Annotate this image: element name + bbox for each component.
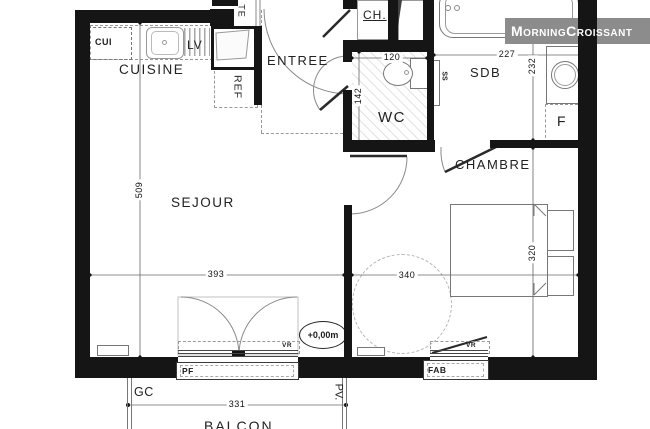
pf-sill: PF [176,362,299,380]
dim-balcon-width: 331 [227,400,248,410]
dim-chambre-depth: 320 [528,243,538,264]
room-label-entree: ENTREE [267,54,329,67]
wall-bottom-b [298,357,430,378]
chambre-door-arc [441,147,445,172]
dim-sejour-height: 509 [135,180,145,201]
room-label-balcon: BALCON [204,419,274,429]
wall-bottom-c [488,357,597,380]
wall-wc-sdb [427,52,434,143]
wall-partition [344,205,352,357]
fab-sill: FAB [423,360,489,380]
dim-sejour-width: 393 [206,270,227,280]
dim-chambre-width: 340 [397,271,418,281]
wall-wc-top [348,40,434,52]
fab-label: FAB [428,365,447,375]
level-marker: +0,00m [299,321,347,349]
room-label-cuisine: CUISINE [119,63,184,77]
wall-te-top [212,0,238,6]
wall-right [578,0,597,380]
cooktop-label: CUI [95,38,112,47]
balcony-gc-label: GC [134,386,154,399]
wall-left [75,10,90,378]
wall-te-right [254,26,262,105]
water-heater-label: CH. [363,9,387,21]
dim-sdb-width: 227 [497,50,518,60]
hall-door-arc [351,157,407,214]
fridge-label: REF [232,75,243,99]
watermark-text: MorningCroissant [511,22,632,40]
pf-label: PF [182,366,194,376]
room-label-wc: WC [378,110,406,125]
entry-closet-panel [216,30,249,60]
wall-entry-jamb [343,0,357,9]
towel-radiator-label: SS [441,71,448,80]
wall-hall-top [343,140,435,152]
electrical-panel-label: TE [237,4,246,18]
wall-te-block [210,9,234,26]
floor-plan: CUI LV REF TE CH. SS F +0,00m [0,0,650,429]
entrance-door-leaf [323,10,350,37]
wall-bottom-a [75,357,178,378]
room-label-sdb: SDB [470,66,501,79]
wall-top-kitchen [75,10,228,23]
f-reservation-label: F [557,114,567,128]
dishwasher-label: LV [187,39,203,51]
dimension-dots [88,21,579,407]
wall-wc-left-upper [343,40,352,62]
balcony-pv-label: PV. [333,384,344,401]
dim-sdb-depth: 232 [528,56,538,77]
pf-vr-label: VR [282,343,292,350]
fab-vr-label: VR [466,343,476,350]
dim-wc-width: 120 [382,53,403,63]
level-marker-text: +0,00m [308,330,339,340]
entrance-door-arc [264,9,349,94]
room-label-sejour: SEJOUR [171,196,235,210]
dim-wc-depth: 142 [354,86,364,107]
room-label-chambre: CHAMBRE [455,158,531,171]
